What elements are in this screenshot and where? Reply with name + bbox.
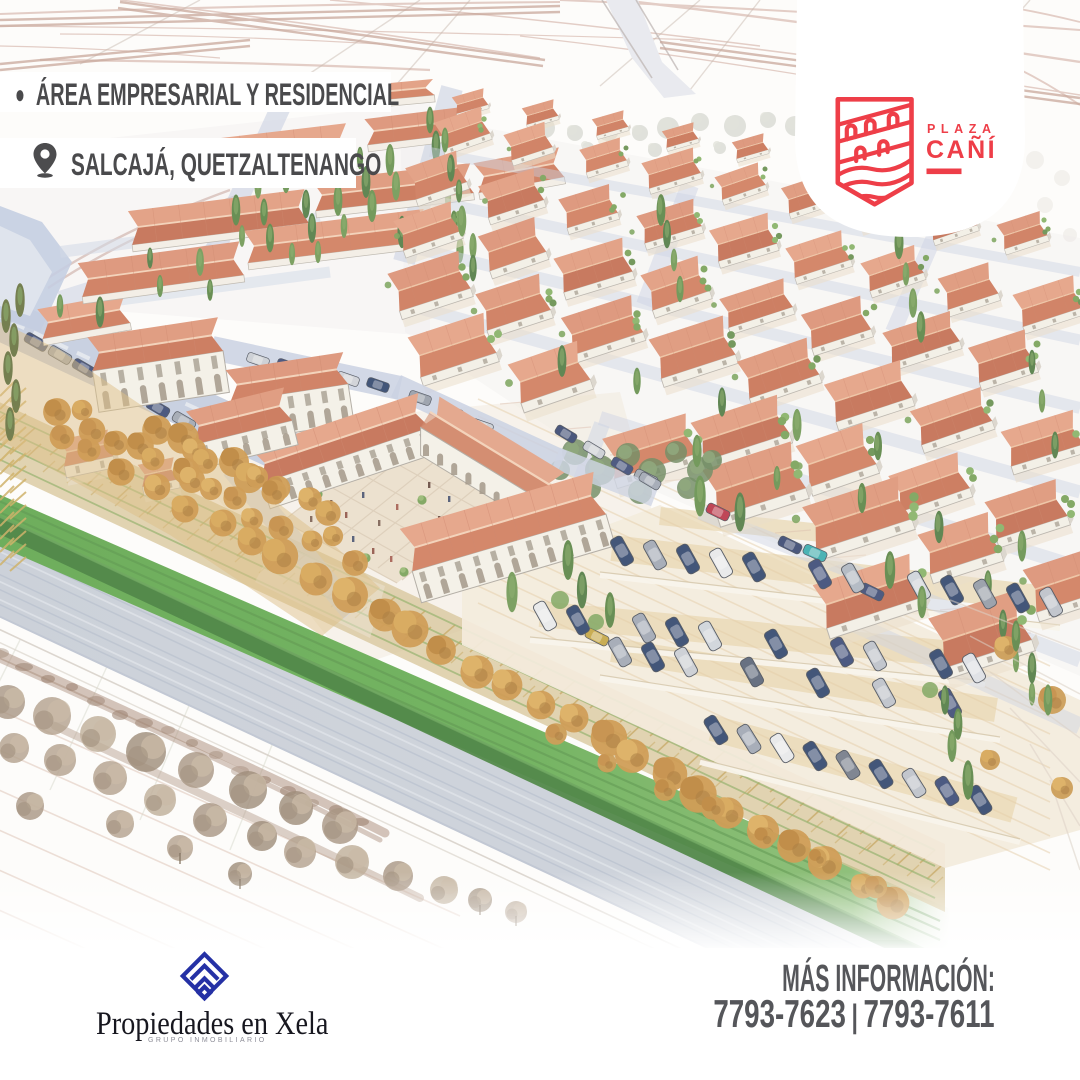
svg-text:PLAZA: PLAZA: [927, 122, 997, 136]
svg-text:CAÑÍ: CAÑÍ: [926, 134, 997, 164]
